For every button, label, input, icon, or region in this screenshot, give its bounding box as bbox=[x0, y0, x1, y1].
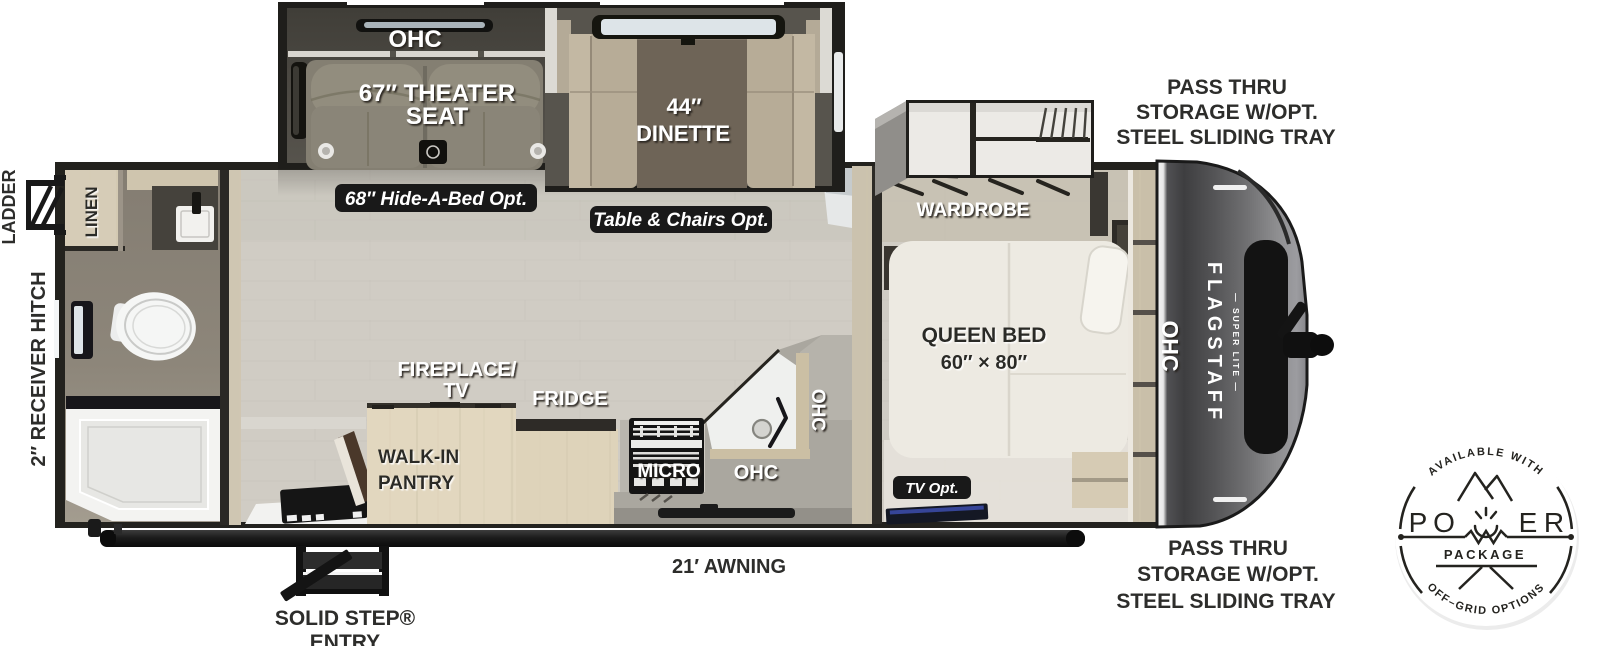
svg-text:SOLID STEP®: SOLID STEP® bbox=[275, 607, 416, 630]
svg-text:R: R bbox=[1544, 507, 1564, 538]
svg-text:STORAGE W/OPT.: STORAGE W/OPT. bbox=[1137, 563, 1319, 586]
svg-text:WALK-IN: WALK-IN bbox=[378, 447, 459, 468]
svg-text:60″ × 80″: 60″ × 80″ bbox=[941, 352, 1028, 374]
svg-text:PASS THRU: PASS THRU bbox=[1167, 76, 1287, 99]
svg-text:44″: 44″ bbox=[666, 94, 701, 119]
svg-text:TV: TV bbox=[443, 380, 469, 402]
svg-text:OHC: OHC bbox=[734, 462, 778, 484]
svg-text:STEEL SLIDING TRAY: STEEL SLIDING TRAY bbox=[1116, 126, 1335, 149]
svg-text:2″ RECEIVER HITCH: 2″ RECEIVER HITCH bbox=[28, 271, 50, 466]
svg-text:OHC: OHC bbox=[1157, 320, 1183, 371]
svg-text:FLAGSTAFF: FLAGSTAFF bbox=[1203, 262, 1225, 424]
svg-text:OHC: OHC bbox=[807, 389, 828, 432]
svg-text:O: O bbox=[1433, 507, 1455, 538]
svg-text:21′ AWNING: 21′ AWNING bbox=[672, 556, 786, 578]
svg-text:LADDER: LADDER bbox=[0, 170, 19, 245]
svg-text:E: E bbox=[1519, 507, 1538, 538]
svg-text:OHC: OHC bbox=[388, 26, 441, 53]
svg-text:68″ Hide-A-Bed Opt.: 68″ Hide-A-Bed Opt. bbox=[345, 189, 527, 210]
svg-text:Table & Chairs Opt.: Table & Chairs Opt. bbox=[593, 210, 769, 231]
svg-text:SEAT: SEAT bbox=[406, 103, 469, 130]
svg-text:TV Opt.: TV Opt. bbox=[905, 480, 958, 497]
svg-text:FIREPLACE/: FIREPLACE/ bbox=[398, 359, 517, 381]
svg-text:FRIDGE: FRIDGE bbox=[532, 388, 608, 410]
svg-text:P: P bbox=[1409, 507, 1428, 538]
svg-text:— SUPER LITE —: — SUPER LITE — bbox=[1231, 293, 1241, 393]
svg-text:PACKAGE: PACKAGE bbox=[1444, 547, 1526, 562]
svg-text:WARDROBE: WARDROBE bbox=[917, 200, 1030, 221]
svg-text:ENTRY: ENTRY bbox=[310, 631, 380, 646]
svg-text:PASS THRU: PASS THRU bbox=[1168, 537, 1288, 560]
svg-text:LINEN: LINEN bbox=[82, 187, 101, 238]
svg-text:DINETTE: DINETTE bbox=[636, 121, 730, 146]
svg-text:STEEL SLIDING TRAY: STEEL SLIDING TRAY bbox=[1116, 590, 1335, 613]
svg-text:QUEEN BED: QUEEN BED bbox=[922, 324, 1047, 347]
svg-text:MICRO: MICRO bbox=[637, 461, 700, 482]
svg-text:STORAGE W/OPT.: STORAGE W/OPT. bbox=[1136, 101, 1318, 124]
svg-text:PANTRY: PANTRY bbox=[378, 473, 454, 494]
